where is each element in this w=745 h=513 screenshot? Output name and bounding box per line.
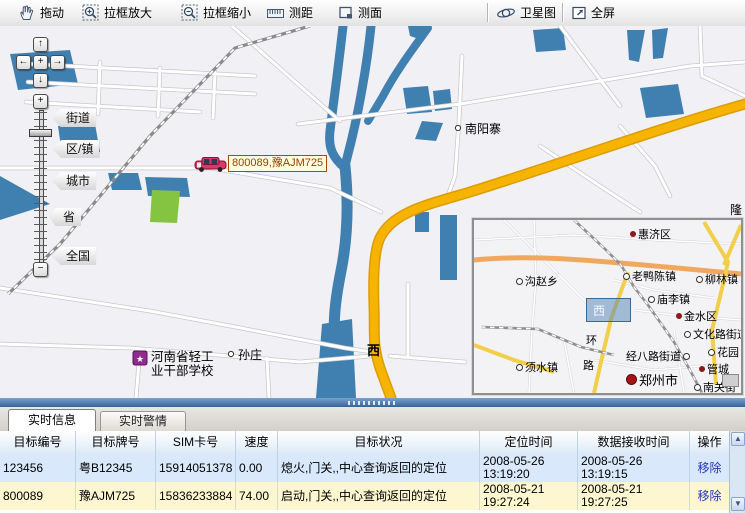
zoom-tag-district[interactable]: 区/镇 xyxy=(52,140,99,158)
toolbar-separator xyxy=(562,3,564,22)
col-header-target-id[interactable]: 目标编号 xyxy=(0,431,76,454)
fullscreen-label: 全屏 xyxy=(591,4,615,21)
vehicle-info-label[interactable]: 800089,豫AJM725 xyxy=(228,155,327,172)
col-header-action[interactable]: 操作 xyxy=(690,431,729,454)
tab-realtime-info[interactable]: 实时信息 xyxy=(8,409,96,431)
circle-marker xyxy=(516,364,523,371)
school-icon: ★ xyxy=(136,354,144,364)
minimap[interactable]: 西 惠济区 沟赵乡 老鸭陈镇 柳林镇 庙李镇 金水区 文化路街道 经八路街道 花… xyxy=(472,218,743,395)
cell-recv-time: 2008-05-21 19:27:25 xyxy=(578,482,690,510)
pan-center-button[interactable]: + xyxy=(33,55,48,70)
minimap-logo-badge xyxy=(722,374,739,387)
fullscreen-icon xyxy=(571,5,587,21)
circle-marker xyxy=(696,276,703,283)
zoom-out-box-label: 拉框缩小 xyxy=(203,4,251,21)
toolbar: 拖动 拉框放大 拉框缩小 测距 测面 卫星图 全屏 xyxy=(0,0,745,27)
cell-target-id: 800089 xyxy=(0,482,76,510)
minimap-label-zhengzhoushi: 郑州市 xyxy=(626,370,678,389)
cell-loc-time: 2008-05-26 13:19:20 xyxy=(480,454,578,482)
minimap-label-gouzhaoxiang: 沟赵乡 xyxy=(516,273,558,289)
satellite-map-label: 卫星图 xyxy=(520,4,556,21)
city-dot-marker xyxy=(626,374,637,385)
minimap-label-liulinzhen: 柳林镇 xyxy=(696,271,738,287)
circle-marker xyxy=(648,296,655,303)
remove-link[interactable]: 移除 xyxy=(693,490,729,503)
zoom-out-box-button[interactable]: 拉框缩小 xyxy=(177,2,255,23)
remove-link[interactable]: 移除 xyxy=(693,462,729,475)
measure-area-label: 测面 xyxy=(358,4,382,21)
vehicle-marker[interactable] xyxy=(194,156,228,176)
table-row[interactable]: 800089 豫AJM725 15836233884 74.00 启动,门关,,… xyxy=(0,482,729,510)
col-header-sim[interactable]: SIM卡号 xyxy=(156,431,236,454)
minimap-viewport-rect[interactable]: 西 xyxy=(586,298,631,322)
red-dot-marker xyxy=(630,231,636,237)
school-label-line1: 河南省轻工 xyxy=(151,349,214,364)
zoom-tag-nation[interactable]: 全国 xyxy=(52,247,96,265)
zoom-slider-thumb[interactable] xyxy=(29,129,52,137)
minimap-label-wenhualu: 文化路街道 xyxy=(684,326,743,342)
circle-marker xyxy=(708,349,715,356)
measure-distance-button[interactable]: 测距 xyxy=(263,2,317,23)
cell-loc-time: 2008-05-21 19:27:24 xyxy=(480,482,578,510)
zoom-in-box-icon xyxy=(82,4,100,22)
splitter-grip xyxy=(348,401,396,405)
area-icon xyxy=(338,5,354,21)
satellite-icon xyxy=(496,5,516,21)
minimap-label-miaolizhen: 庙李镇 xyxy=(648,291,690,307)
toolbar-separator xyxy=(487,3,489,22)
minimap-label-jingbalu: 经八路街道 xyxy=(626,348,690,364)
cell-speed: 74.00 xyxy=(236,482,278,510)
minimap-label-lu: 路 xyxy=(583,357,594,373)
road-label-xi: 西 xyxy=(367,343,380,358)
minimap-label-huan: 环 xyxy=(586,332,597,348)
drag-tool-button[interactable]: 拖动 xyxy=(14,2,68,23)
scroll-up-button[interactable]: ▲ xyxy=(731,432,745,446)
col-header-status[interactable]: 目标状况 xyxy=(278,431,480,454)
pan-right-button[interactable]: → xyxy=(50,55,65,70)
table-row[interactable]: 123456 粤B12345 15914051378 0.00 熄火,门关,,中… xyxy=(0,454,729,482)
zoom-out-box-icon xyxy=(181,4,199,22)
cell-plate: 豫AJM725 xyxy=(76,482,156,510)
cell-speed: 0.00 xyxy=(236,454,278,482)
red-dot-marker xyxy=(699,366,705,372)
measure-area-button[interactable]: 测面 xyxy=(334,2,386,23)
zoom-tag-city[interactable]: 城市 xyxy=(52,172,96,190)
bottom-panel: 实时信息 实时警情 目标编号 目标牌号 SIM卡号 速度 目标状况 定位时间 数… xyxy=(0,407,745,513)
col-header-loc-time[interactable]: 定位时间 xyxy=(480,431,578,454)
minimap-label-laoyachenzhen: 老鸭陈镇 xyxy=(623,268,676,284)
red-dot-marker xyxy=(676,313,682,319)
scroll-down-button[interactable]: ▼ xyxy=(731,497,745,511)
minimap-label-jinshuiqu: 金水区 xyxy=(676,308,717,324)
table-header-row: 目标编号 目标牌号 SIM卡号 速度 目标状况 定位时间 数据接收时间 操作 xyxy=(0,431,729,455)
fullscreen-button[interactable]: 全屏 xyxy=(567,2,619,23)
horizontal-splitter[interactable] xyxy=(0,398,745,407)
cell-plate: 粤B12345 xyxy=(76,454,156,482)
col-header-plate[interactable]: 目标牌号 xyxy=(76,431,156,454)
town-label-sunzhuang: 孙庄 xyxy=(238,347,262,362)
tab-bar: 实时信息 实时警情 xyxy=(0,407,745,432)
minimap-label-huijiqu: 惠济区 xyxy=(630,226,671,242)
zoom-tag-province[interactable]: 省 xyxy=(49,208,81,226)
school-label-line2: 业干部学校 xyxy=(151,363,214,378)
circle-marker xyxy=(683,353,690,360)
minimap-label-huayuan: 花园 xyxy=(708,344,739,360)
cell-sim: 15836233884 xyxy=(156,482,236,510)
pan-up-button[interactable]: ↑ xyxy=(33,37,48,52)
pan-down-button[interactable]: ↓ xyxy=(33,73,48,88)
cell-recv-time: 2008-05-26 13:19:15 xyxy=(578,454,690,482)
circle-marker xyxy=(623,273,630,280)
car-icon xyxy=(194,156,228,173)
circle-marker xyxy=(516,278,523,285)
hand-icon xyxy=(18,4,36,21)
col-header-speed[interactable]: 速度 xyxy=(236,431,278,454)
drag-tool-label: 拖动 xyxy=(40,4,64,21)
tab-realtime-alarm[interactable]: 实时警情 xyxy=(100,411,186,431)
map-canvas[interactable]: 南阳寨 孙庄 ★ 河南省轻工 业干部学校 西 隆 ↑ ← + → ↓ + − 街… xyxy=(0,26,745,398)
col-header-recv-time[interactable]: 数据接收时间 xyxy=(578,431,690,454)
satellite-map-button[interactable]: 卫星图 xyxy=(492,2,560,23)
cell-status: 熄火,门关,,中心查询返回的定位 xyxy=(278,454,480,482)
town-label-nanyangzhai: 南阳寨 xyxy=(465,121,501,136)
cell-status: 启动,门关,,中心查询返回的定位 xyxy=(278,482,480,510)
zoom-tag-street[interactable]: 街道 xyxy=(52,109,96,127)
zoom-in-box-button[interactable]: 拉框放大 xyxy=(78,2,156,23)
ruler-icon xyxy=(267,6,285,20)
zoom-out-button[interactable]: − xyxy=(33,262,48,277)
clipped-label-long: 隆 xyxy=(730,202,742,217)
circle-marker xyxy=(694,384,701,391)
cell-sim: 15914051378 xyxy=(156,454,236,482)
table-scrollbar[interactable]: ▲ ▼ xyxy=(729,431,745,513)
circle-marker xyxy=(684,331,691,338)
minimap-label-xushuizhen: 须水镇 xyxy=(516,359,558,375)
measure-distance-label: 测距 xyxy=(289,4,313,21)
zoom-in-button[interactable]: + xyxy=(33,94,48,109)
pan-left-button[interactable]: ← xyxy=(16,55,31,70)
cell-target-id: 123456 xyxy=(0,454,76,482)
zoom-in-box-label: 拉框放大 xyxy=(104,4,152,21)
